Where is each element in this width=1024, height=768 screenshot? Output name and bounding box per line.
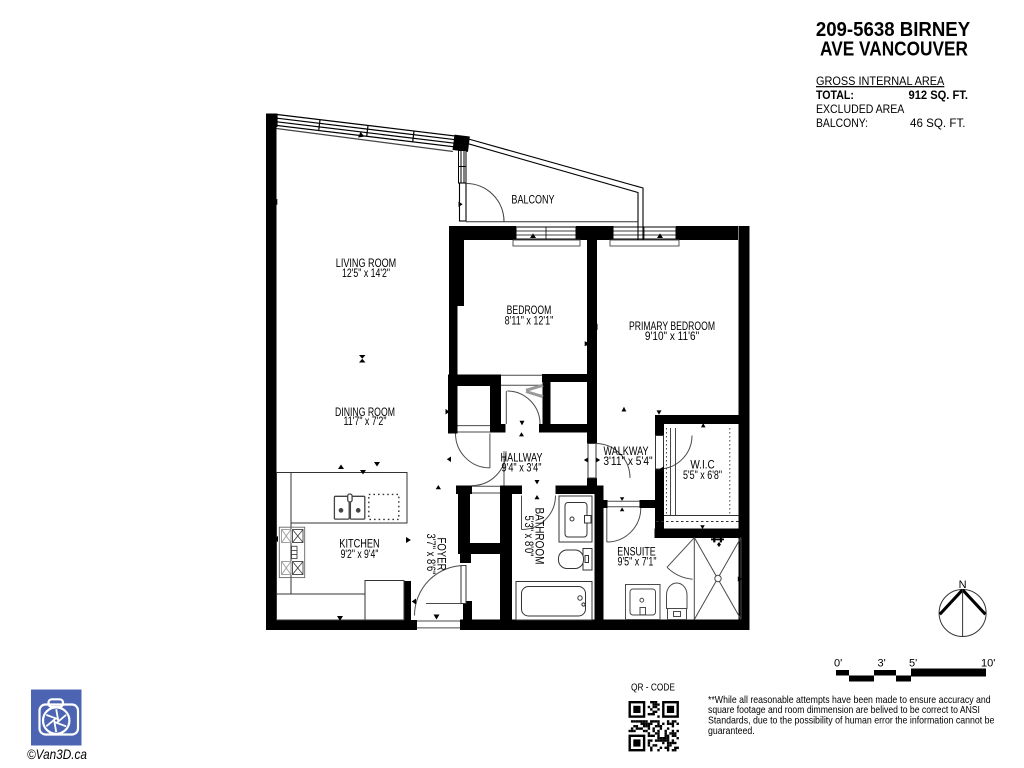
svg-text:BALCONY:: BALCONY: [816, 117, 868, 130]
svg-text:10': 10' [981, 658, 995, 670]
svg-text:5'5" x 6'8": 5'5" x 6'8" [683, 469, 722, 483]
svg-text:guaranteed.: guaranteed. [708, 724, 755, 736]
svg-text:9'5" x 7'1": 9'5" x 7'1" [618, 555, 657, 569]
svg-text:**While all reasonable attempt: **While all reasonable attempts have bee… [708, 693, 991, 705]
svg-text:9'10" x 11'6": 9'10" x 11'6" [645, 330, 699, 343]
svg-text:TOTAL:: TOTAL: [816, 89, 854, 102]
svg-text:5': 5' [909, 658, 917, 670]
svg-text:N: N [959, 579, 967, 591]
svg-text:GROSS INTERNAL AREA: GROSS INTERNAL AREA [816, 74, 945, 88]
svg-text:46 SQ. FT.: 46 SQ. FT. [910, 116, 965, 130]
svg-text:9'4" x 3'4": 9'4" x 3'4" [502, 461, 542, 475]
svg-text:9'2" x 9'4": 9'2" x 9'4" [341, 547, 379, 561]
svg-text:8'11" x 12'1": 8'11" x 12'1" [505, 314, 554, 328]
svg-text:12'5" x 14'2": 12'5" x 14'2" [342, 267, 390, 281]
svg-text:3'7" x 8'6": 3'7" x 8'6" [424, 534, 437, 575]
svg-text:912 SQ. FT.: 912 SQ. FT. [909, 89, 968, 103]
svg-text:QR - CODE: QR - CODE [631, 682, 675, 693]
svg-text:3'11" x 5'4": 3'11" x 5'4" [603, 455, 652, 468]
svg-text:BALCONY: BALCONY [511, 193, 554, 207]
svg-text:3': 3' [878, 658, 886, 670]
svg-text:EXCLUDED AREA: EXCLUDED AREA [816, 103, 905, 116]
svg-text:5'3" x 8'0": 5'3" x 8'0" [522, 516, 535, 557]
svg-text:0': 0' [834, 658, 842, 670]
svg-text:11'7" x 7'2": 11'7" x 7'2" [344, 415, 387, 429]
svg-text:AVE VANCOUVER: AVE VANCOUVER [820, 38, 968, 61]
svg-text:©Van3D.ca: ©Van3D.ca [27, 747, 87, 762]
